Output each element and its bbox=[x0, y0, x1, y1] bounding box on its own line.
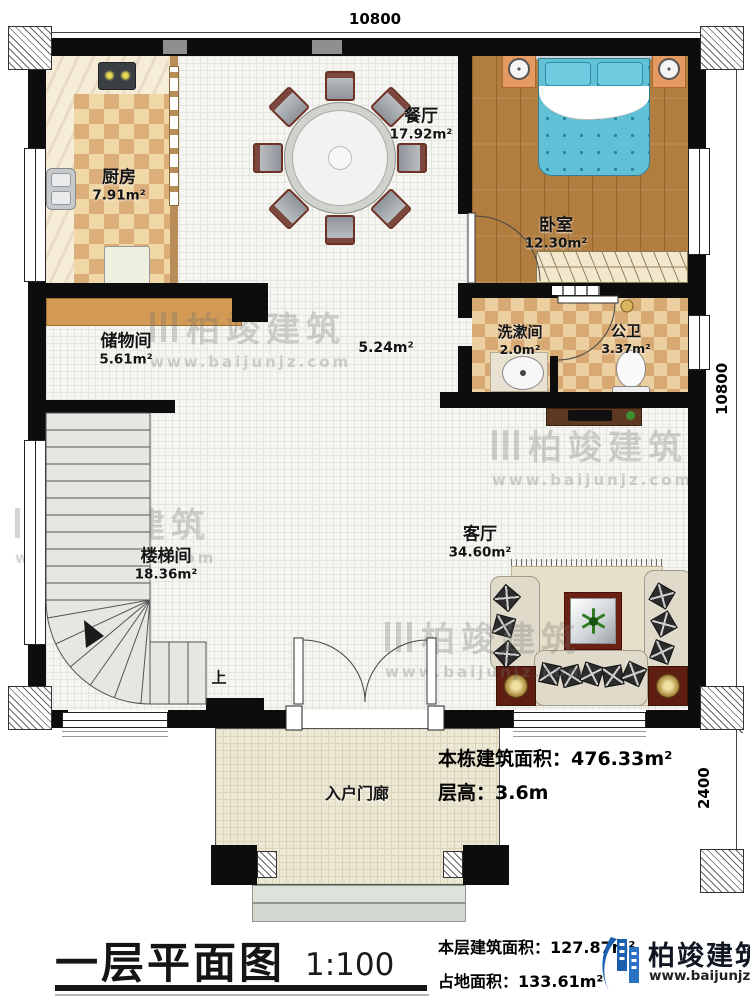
stove-burner bbox=[104, 70, 115, 81]
corner-hatch bbox=[700, 849, 744, 893]
window bbox=[24, 148, 46, 282]
dining-chair bbox=[253, 143, 283, 173]
bedside-lamp bbox=[508, 58, 530, 80]
window bbox=[688, 315, 710, 370]
footer-land-area: 占地面积：133.61m² bbox=[438, 968, 603, 992]
watermark-site: www.baijunjz.com bbox=[385, 663, 586, 681]
sill-line bbox=[513, 736, 646, 737]
room-label-porch: 入户门廊 bbox=[325, 780, 389, 804]
wall-dining-bedroom bbox=[458, 56, 472, 214]
watermark-brand: 柏竣建筑 bbox=[51, 498, 211, 547]
porch-step bbox=[252, 885, 466, 903]
cabinet-plant bbox=[626, 411, 635, 420]
sill-line bbox=[62, 731, 168, 732]
dimension-line-right bbox=[736, 38, 737, 885]
dimension-line-top bbox=[38, 32, 706, 33]
wall-bottom bbox=[646, 710, 706, 728]
dining-table-center bbox=[328, 146, 352, 170]
wall-stair-stub bbox=[206, 698, 264, 712]
title-underline-thin bbox=[55, 994, 429, 996]
wall-bath-south bbox=[440, 392, 688, 408]
room-label-storage: 储物间 5.61m² bbox=[99, 327, 152, 368]
wall-joint bbox=[163, 40, 187, 54]
corner-hatch bbox=[700, 686, 744, 730]
brand-logo-icon bbox=[597, 933, 643, 995]
window bbox=[688, 148, 710, 255]
stove-burner bbox=[120, 70, 131, 81]
watermark: 柏竣建筑 www.baijunjz.com bbox=[385, 612, 586, 681]
room-label-toilet: 公卫 3.37m² bbox=[601, 320, 650, 356]
room-label-living: 客厅 34.60m² bbox=[449, 520, 512, 561]
porch-column-hatch bbox=[257, 851, 277, 878]
dining-chair bbox=[325, 215, 355, 245]
window bbox=[513, 712, 646, 728]
bedside-lamp bbox=[658, 58, 680, 80]
kitchen-sliding-door bbox=[169, 66, 179, 206]
side-table-medallion bbox=[656, 674, 680, 698]
window bbox=[24, 440, 46, 645]
dimension-label-porch-depth: 2400 bbox=[695, 769, 713, 809]
watermark-brand: 柏竣建筑 bbox=[421, 612, 581, 661]
watermark-site: www.baijunjz.com bbox=[150, 353, 351, 371]
stairs-up-label: 上 bbox=[211, 667, 226, 688]
title-underline bbox=[55, 985, 427, 991]
note-floor-height: 层高：3.6m bbox=[438, 778, 548, 805]
sink-basin bbox=[51, 173, 71, 187]
watermark-site: www.baijunjz.com bbox=[492, 471, 693, 489]
brand-website: www.baijunjz.com bbox=[649, 968, 750, 984]
wall-joint bbox=[312, 40, 342, 54]
dimension-label-top: 10800 bbox=[340, 10, 410, 28]
sliding-door-track bbox=[552, 286, 600, 295]
corner-hatch bbox=[700, 26, 744, 70]
watermark: 柏竣建筑 www.baijunjz.com bbox=[492, 420, 693, 489]
porch-column-hatch bbox=[443, 851, 463, 878]
sill-line bbox=[513, 731, 646, 732]
wall-kitchen-south bbox=[28, 283, 268, 298]
floor-plan-page: 柏竣建筑 www.baijunjz.com 柏竣建筑 www.baijunjz.… bbox=[0, 0, 750, 1004]
room-label-kitchen: 厨房 7.91m² bbox=[92, 163, 145, 204]
washbasin-drain bbox=[520, 370, 526, 376]
porch-column bbox=[463, 845, 509, 885]
page-title: 一层平面图 bbox=[55, 929, 285, 991]
wall-right bbox=[688, 38, 706, 728]
sink-basin bbox=[51, 191, 71, 205]
porch-column bbox=[211, 845, 257, 885]
wall-bottom bbox=[428, 710, 514, 728]
dining-chair bbox=[325, 71, 355, 101]
wall-washroom-stub bbox=[458, 298, 472, 318]
wall-storage-south bbox=[28, 400, 175, 413]
room-label-bedroom: 卧室 12.30m² bbox=[525, 211, 588, 252]
carpet-fringe bbox=[511, 559, 663, 566]
wall-bottom bbox=[168, 710, 292, 728]
room-label-dining: 餐厅 17.92m² bbox=[390, 102, 453, 143]
sill-line bbox=[62, 736, 168, 737]
wall-washroom-stub bbox=[458, 346, 472, 392]
scale-label: 1:100 bbox=[305, 947, 394, 983]
fridge bbox=[104, 246, 150, 286]
wall-pier bbox=[232, 298, 268, 322]
dining-chair bbox=[397, 143, 427, 173]
wall-top bbox=[28, 38, 706, 56]
watermark-brand: 柏竣建筑 bbox=[528, 420, 688, 469]
porch-step bbox=[252, 903, 466, 922]
dimension-label-right: 10800 bbox=[713, 367, 731, 415]
watermark-logo-icon bbox=[492, 430, 520, 460]
pillow bbox=[545, 62, 591, 86]
corner-hatch bbox=[8, 686, 52, 730]
pillow bbox=[597, 62, 643, 86]
wall-washroom-toilet bbox=[550, 356, 558, 395]
room-label-stairwell: 楼梯间 18.36m² bbox=[135, 542, 198, 583]
room-label-washroom: 洗漱间 2.0m² bbox=[497, 321, 542, 357]
window bbox=[62, 712, 168, 728]
corridor-area-label: 5.24m² bbox=[358, 340, 413, 356]
watermark-logo-icon bbox=[150, 312, 178, 342]
watermark-logo-icon bbox=[385, 622, 413, 652]
note-total-building-area: 本栋建筑面积：476.33m² bbox=[438, 744, 672, 771]
wardrobe bbox=[536, 251, 688, 283]
corner-hatch bbox=[8, 26, 52, 70]
